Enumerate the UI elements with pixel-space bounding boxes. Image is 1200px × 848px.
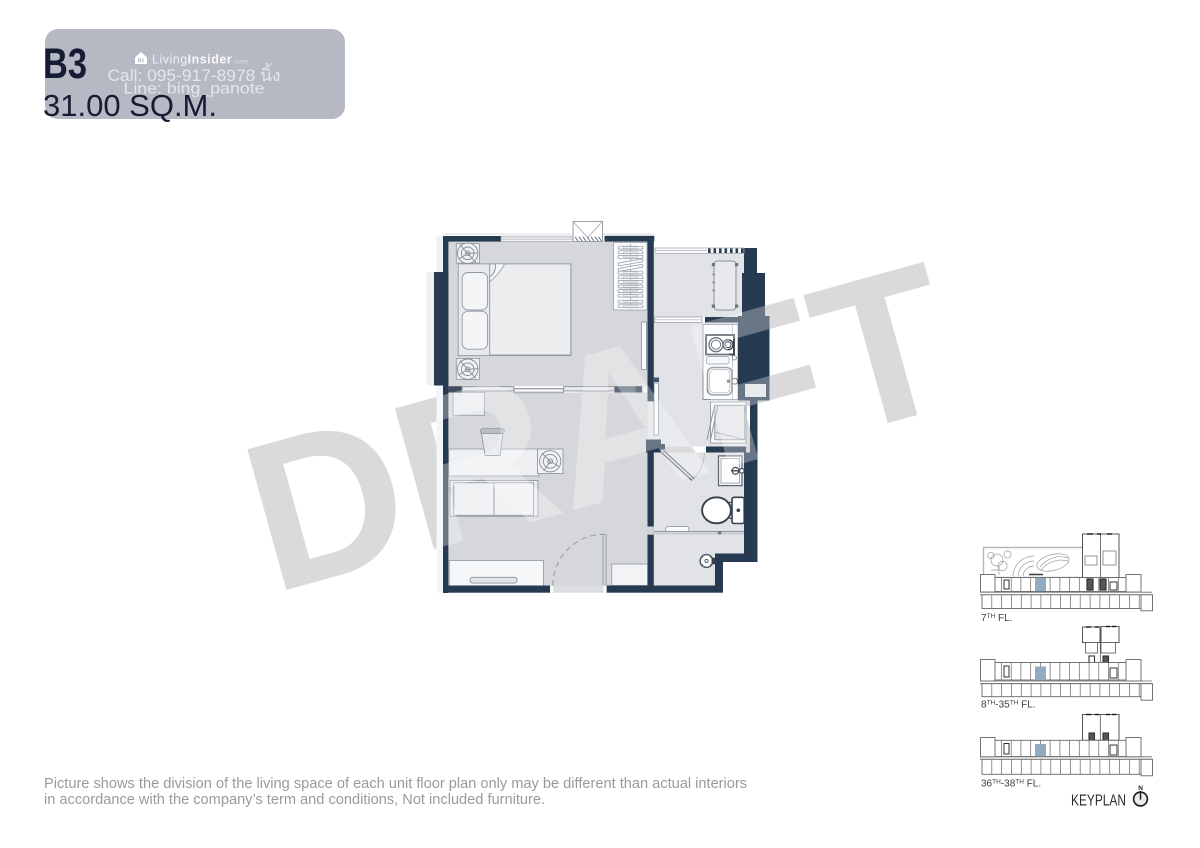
svg-text:B3: B3 [43, 41, 87, 88]
svg-text:in accordance with the company: in accordance with the company’s term an… [44, 792, 545, 808]
svg-text:KEYPLAN: KEYPLAN [1071, 793, 1126, 810]
svg-text:Picture shows the division of: Picture shows the division of the living… [44, 776, 747, 792]
svg-text:36TH-38TH FL.: 36TH-38TH FL. [981, 779, 1041, 790]
svg-text:N: N [1138, 785, 1143, 792]
svg-text:7TH FL.: 7TH FL. [981, 613, 1012, 624]
svg-text:in: in [137, 56, 144, 65]
svg-text:31.00 SQ.M.: 31.00 SQ.M. [43, 89, 217, 123]
